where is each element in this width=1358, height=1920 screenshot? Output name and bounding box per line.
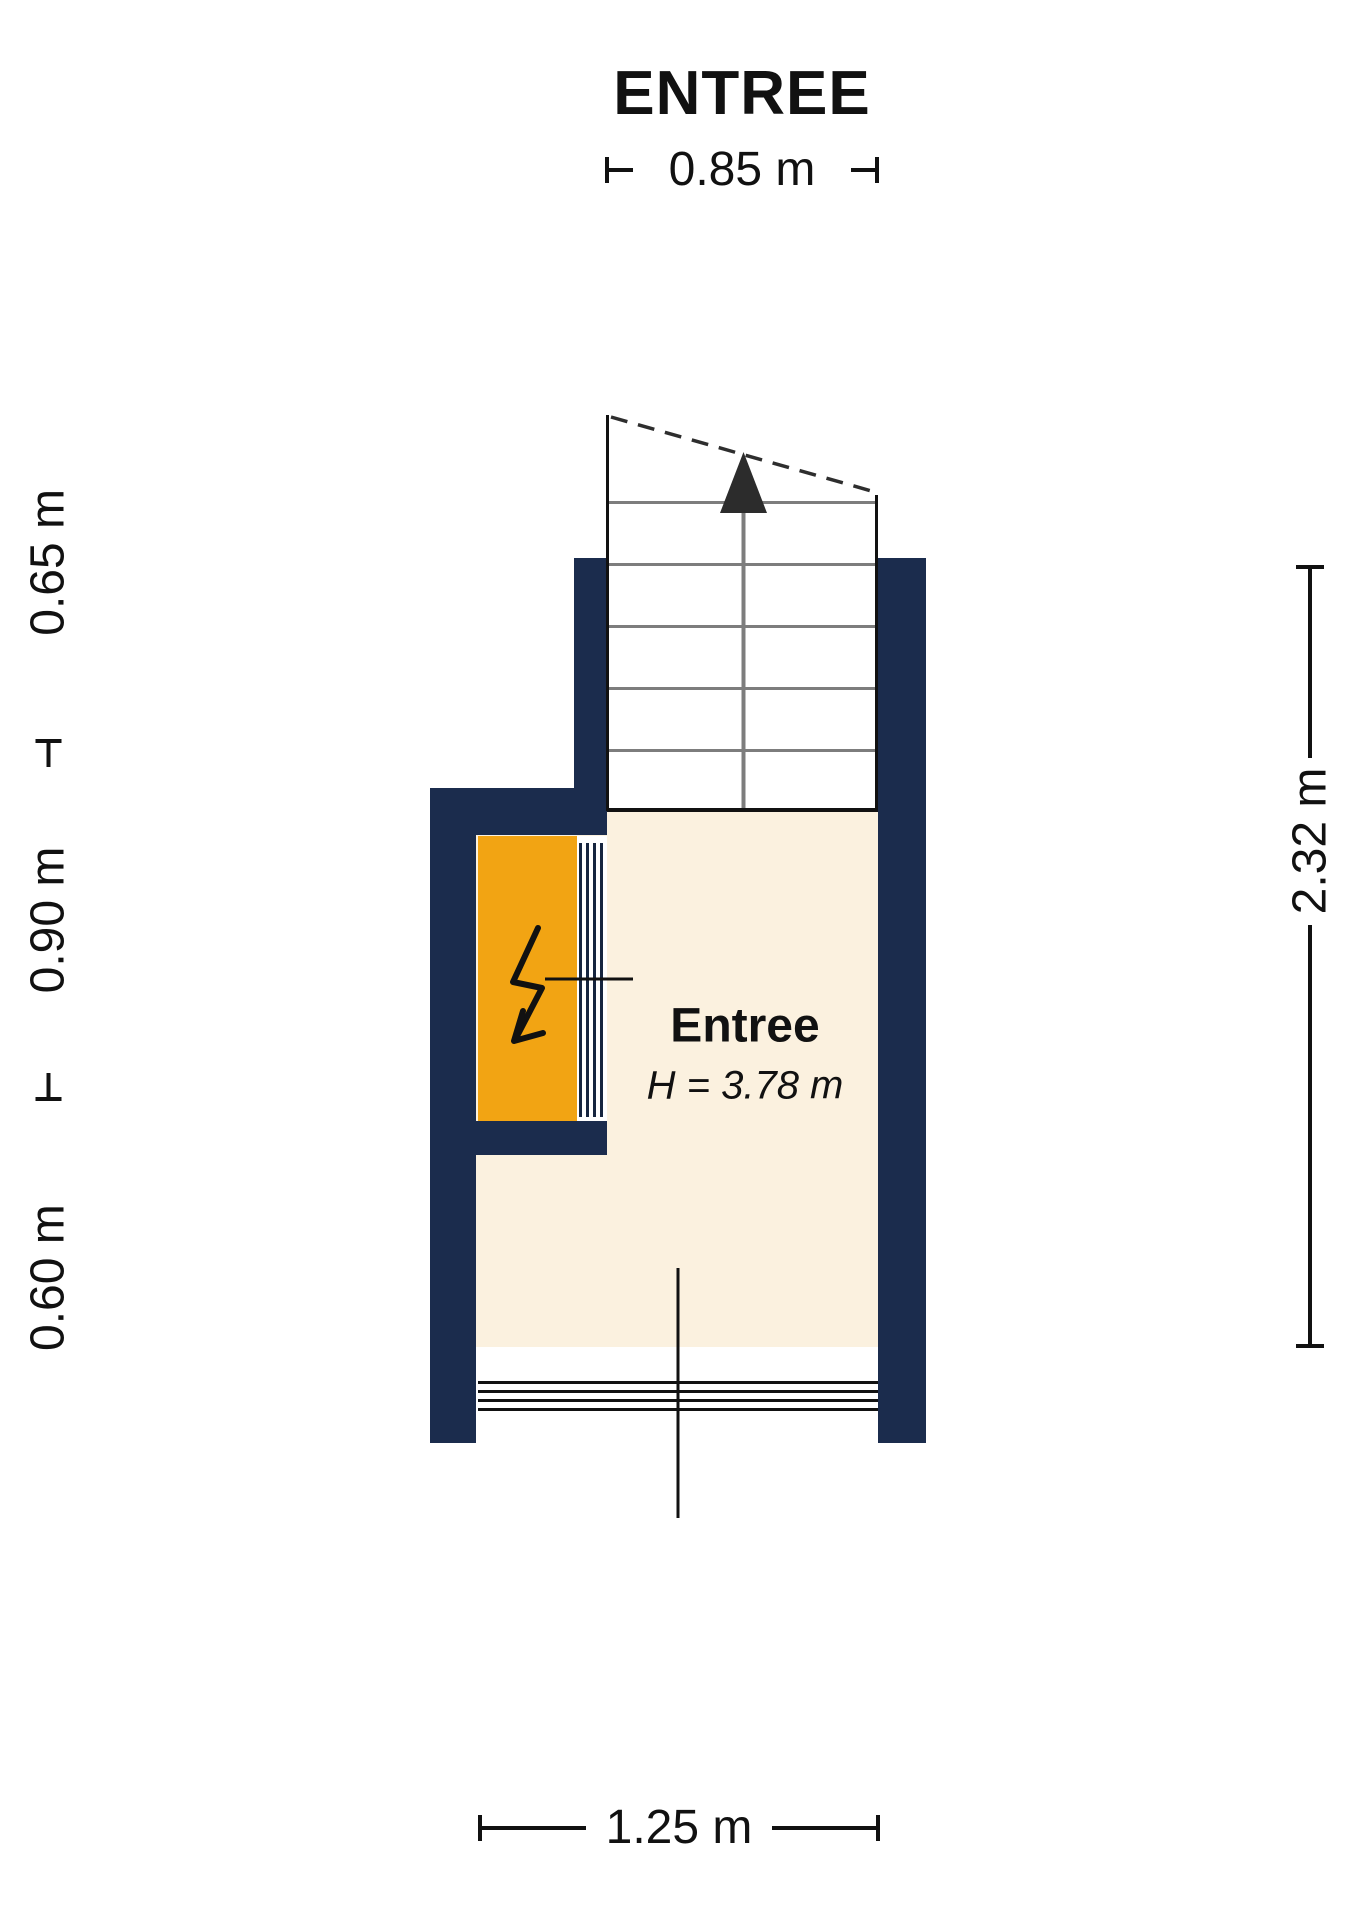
dimension-left-bottom-label: 0.60 m xyxy=(21,1204,76,1351)
dimension-right-line-upper xyxy=(1308,568,1312,758)
dimension-top-label: 0.85 m xyxy=(669,142,816,197)
dimension-left-middle-label: 0.90 m xyxy=(21,847,76,994)
dim-tick-icon xyxy=(35,739,61,743)
dimension-bottom: 1.25 m xyxy=(478,1800,880,1855)
wall-left xyxy=(430,788,476,1443)
dimension-right-line-lower xyxy=(1308,925,1312,1347)
closet-door-line xyxy=(593,843,596,1117)
stair-cut-dashed-line xyxy=(611,417,875,492)
front-door-line xyxy=(478,1399,878,1402)
wall-right xyxy=(878,558,926,1443)
meter-closet xyxy=(478,836,577,1124)
dimension-bottom-label: 1.25 m xyxy=(606,1800,753,1855)
page-title: ENTREE xyxy=(613,58,870,129)
closet-door-line xyxy=(600,843,603,1117)
stair-tread xyxy=(609,749,875,752)
stair-edge-right xyxy=(875,495,878,811)
front-door-line xyxy=(478,1408,878,1411)
dim-tick-icon xyxy=(35,1097,61,1101)
dim-tick-bottom-icon xyxy=(1296,1344,1324,1348)
stair-bottom-edge xyxy=(607,808,878,812)
front-door-line xyxy=(478,1390,878,1393)
stair-tread xyxy=(609,563,875,566)
floorplan-canvas: ENTREE 0.85 m 0.60 m 0.90 m 0.65 m 2.32 … xyxy=(0,0,1358,1920)
stair-tread xyxy=(609,501,875,504)
wall-closet-bottom xyxy=(476,1121,607,1155)
closet-door-line xyxy=(579,843,582,1117)
front-door-line xyxy=(478,1381,878,1384)
dim-line xyxy=(482,1826,586,1830)
wall-closet-top xyxy=(430,788,607,835)
closet-door-line xyxy=(586,843,589,1117)
wall-stairwell-left xyxy=(574,558,607,790)
stair-tread xyxy=(609,625,875,628)
dim-tick-top-icon xyxy=(1296,565,1324,569)
room-name-label: Entree xyxy=(670,999,819,1054)
dim-tick-left-icon xyxy=(605,157,609,183)
dim-tick-right-icon xyxy=(875,157,879,183)
dim-line xyxy=(772,1826,876,1830)
dim-tick-right-icon xyxy=(876,1815,880,1841)
room-height-label: H = 3.78 m xyxy=(647,1064,844,1109)
stair-tread xyxy=(609,687,875,690)
dim-tick-left-icon xyxy=(478,1815,482,1841)
dimension-right-label: 2.32 m xyxy=(1283,768,1338,915)
dimension-left-top-label: 0.65 m xyxy=(21,489,76,636)
dimension-top: 0.85 m xyxy=(605,142,879,197)
